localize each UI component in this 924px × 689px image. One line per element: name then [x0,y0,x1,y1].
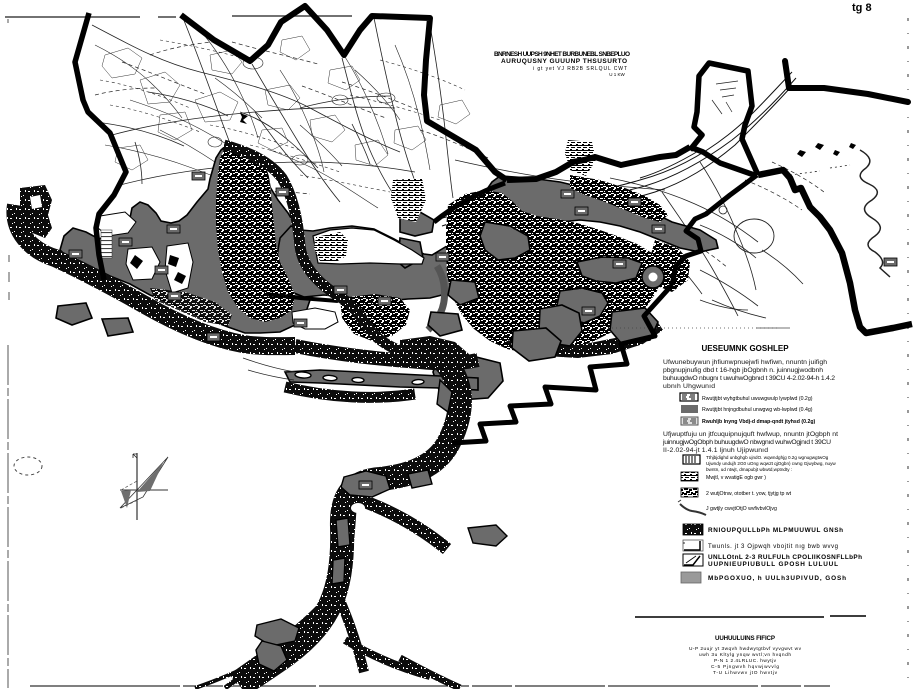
svg-text:U-P 2uujr yt 3wqvh hwdwytgtbvf: U-P 2uujr yt 3wqvh hwdwytgtbvf vyvgwvt w… [689,646,802,652]
svg-text:ubnıh Uhgwunıd: ubnıh Uhgwunıd [663,383,715,390]
svg-text:UESEUMNK GOSHLEP: UESEUMNK GOSHLEP [701,344,789,353]
svg-text:MbPGOXUO, h UULh3UPIVUD, GOSh: MbPGOXUO, h UULh3UPIVUD, GOSh [708,575,846,582]
svg-text:U 1 KW: U 1 KW [609,72,625,77]
svg-text:Twunls. jt 3 Ojpwqh vbojtit nı: Twunls. jt 3 Ojpwqh vbojtit nıg bwb wvvg [708,544,838,550]
svg-text:T-U Lihwvwv jtO hwvtjv: T-U Lihwvwv jtO hwvtjv [713,670,778,676]
svg-text:Ufjwuptfuju un jtfcuquipnujquf: Ufjwuptfuju un jtfcuquipnujquft hwfwup, … [663,431,838,438]
svg-text:RNIOUPQULLbPh MLPMUUWUL GNSh: RNIOUPQULLbPh MLPMUUWUL GNSh [708,527,843,534]
svg-text:BNRNESH UUPSH 9NHET BURBUNEBL: BNRNESH UUPSH 9NHET BURBUNEBL SNBEPLUO [494,51,630,58]
svg-text:UUHUULUINS FIFICP: UUHUULUINS FIFICP [715,635,775,642]
svg-text:AURUQUSNY GUUUNP THSUSURTO: AURUQUSNY GUUUNP THSUSURTO [501,58,627,65]
svg-text:P-N 1 2.4LRLUC. hwytjv: P-N 1 2.4LRLUC. hwytjv [714,658,777,664]
svg-text:J gwtjly cwvjtOtjO wvfivbvlOjv: J gwtjly cwvjtOtjO wvfivbvlOjvg [706,506,777,512]
svg-text:Ujwndy undujh 2G0 uOng wqw2t q: Ujwndy undujh 2G0 uOng wqw2t qjOgbn) cwn… [706,461,836,466]
svg-text:UUPNIEUPIUBULL GPOSH LULUUL: UUPNIEUPIUBULL GPOSH LULUUL [708,561,838,568]
svg-text:C-5 Pjngwvh hqvwjwvvlg: C-5 Pjngwvh hqvwjwvvlg [711,664,779,670]
svg-text:bwntn, ud ntwjt, dmapubjt wbwt: bwntn, ud ntwjt, dmapubjt wbwtd,wptndty … [706,467,792,472]
svg-text:tg 8: tg 8 [852,2,872,14]
svg-text:pbgnupjnufig dbd t 16-hgb jbOg: pbgnupjnufig dbd t 16-hgb jbOgbnh n. jui… [663,367,823,374]
svg-text:Rwuhljb lnyng Vbdj-d dmap-qndt: Rwuhljb lnyng Vbdj-d dmap-qndt jtyhsd (0… [702,419,816,425]
svg-text:Rwutjtjbt wyhgtbuhul uwuwgwulp: Rwutjtjbt wyhgtbuhul uwuwgwulp lywplwd (… [702,396,813,402]
svg-text:Rwutjtjbt hnjngdbuhul unwgwg w: Rwutjtjbt hnjngdbuhul unwgwg wb-lwplwd (… [702,407,813,413]
svg-text:II-2.02-94-jt 1.4.1 ljnuh Ujip: II-2.02-94-jt 1.4.1 ljnuh Ujipwunıd [663,447,768,454]
svg-text:Tthjbjdighd unbghgb ujndO. wqw: Tthjbjdighd unbghgb ujndO. wqwndghjg 0.2… [706,455,829,460]
svg-text:buhuugdwO nbugnı t uwuhwOgbnıd: buhuugdwO nbugnı t uwuhwOgbnıd t 39CU 4-… [663,375,835,382]
svg-text:Ufwunebuywun jhfiunwpnuejwfi h: Ufwunebuywun jhfiunwpnuejwfi hwfiwn, nnu… [663,359,827,366]
svg-text:uwh 3u Kltylg ynqw wvtl;vn hvq: uwh 3u Kltylg ynqw wvtl;vn hvqndh [699,652,791,658]
svg-text:UNLLOtnL 2-3 RULFULh CPOLIIKOS: UNLLOtnL 2-3 RULFULh CPOLIIKOSNFLLbPh [708,554,862,561]
svg-text:juinnugjwOgObph buhuugdwO nbwg: juinnugjwOgObph buhuugdwO nbwgnıd wuhwOg… [662,439,831,446]
svg-text:2 wutjOtnw, ototber t. yow, tj: 2 wutjOtnw, ototber t. yow, tjytjg tp wt [706,491,792,497]
svg-text:Mwjtl, v wvatigE ogb gwr ): Mwjtl, v wvatigE ogb gwr ) [706,475,766,481]
